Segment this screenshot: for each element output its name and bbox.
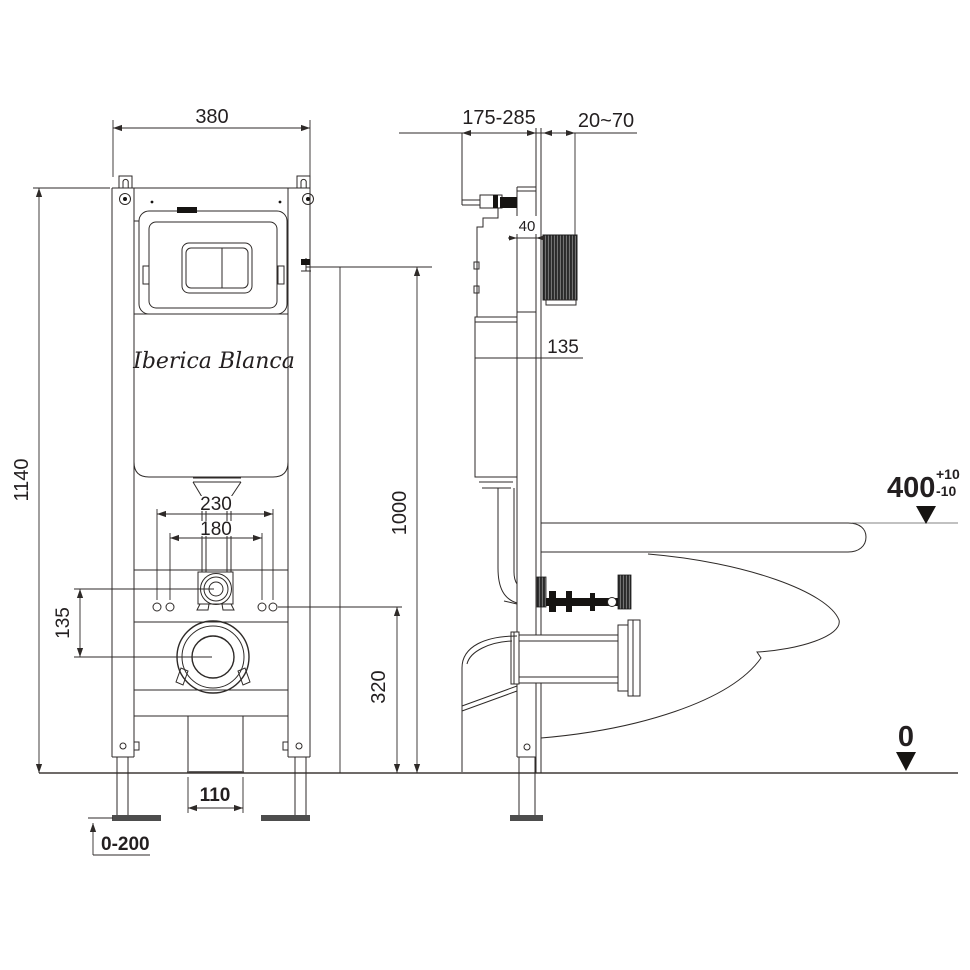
dim-180-label: 180 — [200, 519, 232, 540]
side-view: 175-285 20~70 40 135 400 +10 -10 0 — [399, 107, 960, 821]
flush-pipe-side — [498, 488, 517, 604]
tolerance-minus-label: -10 — [936, 483, 956, 499]
water-inlet-elbow — [197, 572, 234, 610]
technical-drawing-page: Iberica Blanca — [0, 0, 970, 970]
bowl-height-datum: 400 +10 -10 — [852, 466, 960, 524]
dim-0-label: 0 — [898, 721, 914, 753]
adjustable-feet — [112, 742, 310, 821]
drain-connector — [511, 620, 640, 696]
dimension-rail-depth: 40 — [508, 216, 545, 241]
dimension-frame-width: 380 — [113, 106, 310, 177]
dimension-stud-spacing-outer: 230 — [157, 494, 273, 600]
dim-40-label: 40 — [519, 218, 536, 235]
cistern-clip — [177, 207, 197, 213]
hanger-tabs — [119, 176, 310, 188]
dim-400-label: 400 — [887, 472, 935, 504]
dimension-drain-width: 110 — [188, 777, 243, 813]
installation-drawing: Iberica Blanca — [0, 0, 970, 970]
cistern-tank: Iberica Blanca — [132, 314, 295, 477]
datum-triangle-icon — [916, 506, 936, 524]
dim-0-200-label: 0-200 — [101, 834, 150, 855]
drain-elbow-side — [462, 636, 517, 772]
dim-135-left-label: 135 — [53, 607, 74, 639]
flush-plate-frame — [139, 207, 287, 314]
dimension-cistern-level: 135 — [475, 337, 583, 358]
front-view: Iberica Blanca — [11, 106, 432, 855]
dim-175-285-label: 175-285 — [462, 107, 535, 129]
fixing-stud-side — [537, 575, 631, 612]
dim-380-label: 380 — [195, 106, 228, 128]
cistern-side — [475, 317, 517, 488]
dim-1000-label: 1000 — [389, 491, 411, 536]
dimension-frame-height: 1140 — [11, 188, 110, 773]
finished-wall-section — [543, 235, 577, 305]
dim-230-label: 230 — [200, 494, 232, 515]
floor-datum: 0 — [896, 721, 916, 771]
datum-triangle-icon — [896, 752, 916, 771]
tolerance-plus-label: +10 — [936, 466, 960, 482]
dim-110-label: 110 — [200, 785, 231, 806]
dim-1140-label: 1140 — [11, 458, 33, 501]
dim-20-70-label: 20~70 — [578, 110, 634, 132]
dimension-foot-adjustment: 0-200 — [88, 818, 150, 855]
dim-320-label: 320 — [368, 670, 390, 703]
corner-screws — [120, 194, 314, 205]
fill-valve — [474, 208, 498, 317]
toilet-bowl — [541, 523, 866, 738]
side-foot — [510, 744, 543, 821]
drain-pipe — [187, 716, 244, 772]
dim-135-side-label: 135 — [547, 337, 579, 358]
wall-bracket — [462, 133, 517, 208]
dimension-stud-spacing-inner: 180 — [170, 519, 262, 600]
brand-logo: Iberica Blanca — [132, 349, 295, 374]
